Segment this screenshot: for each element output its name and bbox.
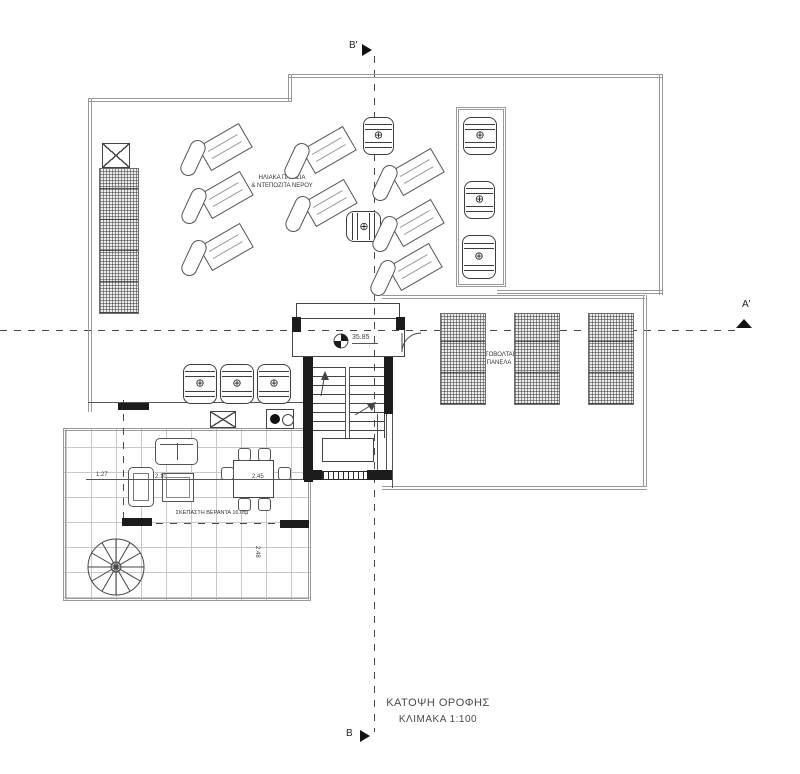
wall-segment <box>304 462 313 482</box>
roof-plan-drawing: Β' Β Α' ΗΛΙΑΚΑ ΠΛΑΙΣΙΑ & ΝΤΕΠΟΖΙΤΑ ΝΕΡΟΥ… <box>0 0 800 774</box>
water-tank: ⊕ <box>183 364 217 404</box>
stair-landing <box>322 438 374 462</box>
wall-segment <box>384 357 393 414</box>
water-tank: ⊕ <box>220 364 254 404</box>
tank-cap-icon: ⊕ <box>464 130 496 141</box>
roof-edge-line <box>382 486 647 490</box>
section-arrow-icon <box>360 730 370 742</box>
plan-line <box>123 400 124 523</box>
roof-edge-line <box>643 295 647 487</box>
water-tank: ⊕ <box>257 364 291 404</box>
tank-band <box>185 391 215 397</box>
dimension-label: 1.27 <box>96 472 108 478</box>
bbq-unit <box>266 409 294 429</box>
plan-symbols-overlay <box>0 0 800 774</box>
scale-line: ΚΛΙΜΑΚΑ 1:100 <box>360 712 516 727</box>
tank-cap-icon: ⊕ <box>463 251 495 262</box>
solar-heater-unit <box>184 227 250 279</box>
roof-edge-line <box>288 74 663 78</box>
burner-icon <box>282 414 294 426</box>
tank-band <box>464 243 494 249</box>
plan-line <box>86 479 308 480</box>
wall-segment <box>396 317 405 330</box>
wall-segment <box>122 518 152 526</box>
plan-line <box>392 412 393 488</box>
roof-edge-line <box>659 74 663 295</box>
dining-chair <box>238 448 251 461</box>
tank-band <box>465 142 495 148</box>
wall-segment <box>118 403 149 410</box>
solar-heater-unit <box>287 130 353 182</box>
tank-cap-icon: ⊕ <box>184 378 216 389</box>
water-tank: ⊕ <box>462 235 496 279</box>
veranda-label: ΣΚΕΠΑΣΤΗ ΒΕΡΑΝΤΑ 16.0τμ <box>174 510 250 517</box>
pv-panel <box>440 313 486 405</box>
water-tank: ⊕ <box>363 117 394 155</box>
tank-band <box>259 391 289 397</box>
stair-flight <box>312 367 346 438</box>
veranda-boundary <box>128 523 304 524</box>
section-arrow-icon <box>736 319 752 328</box>
solar-heater-unit <box>288 183 354 235</box>
dining-chair <box>258 448 271 461</box>
stair-flight <box>349 367 385 438</box>
plan-line <box>352 343 378 344</box>
tank-band <box>222 371 252 377</box>
tank-cap-icon: ⊕ <box>465 194 494 205</box>
tank-band <box>365 142 392 148</box>
burner-icon <box>270 414 280 424</box>
section-marker-a-right: Α' <box>742 299 751 310</box>
stair-parapet <box>296 303 400 319</box>
plan-line <box>349 367 350 438</box>
water-tank: ⊕ <box>463 117 497 155</box>
wall-segment <box>367 470 392 480</box>
vent-louver <box>322 471 368 480</box>
tank-cap-icon: ⊕ <box>221 378 253 389</box>
pv-panel <box>99 168 139 314</box>
water-tank: ⊕ <box>464 181 495 219</box>
drawing-title: ΚΑΤΟΨΗ ΟΡΟΦΗΣ ΚΛΙΜΑΚΑ 1:100 <box>360 695 516 727</box>
stair-vestibule <box>292 318 405 357</box>
tank-band <box>185 371 215 377</box>
wall-segment <box>280 520 309 528</box>
roof-edge-line <box>88 98 92 412</box>
solar-heater-unit <box>375 152 441 204</box>
level-value: 35.85 <box>352 334 370 341</box>
pv-panel <box>514 313 560 405</box>
tank-band <box>222 391 252 397</box>
plan-line <box>377 414 378 472</box>
pv-panel <box>588 313 634 405</box>
section-marker-b-top: Β' <box>349 40 358 51</box>
tank-cap-icon: ⊕ <box>358 212 369 241</box>
dining-chair <box>238 498 251 511</box>
section-marker-b-bottom: Β <box>346 728 353 739</box>
section-arrow-icon <box>362 44 372 56</box>
sofa <box>155 438 198 465</box>
dining-chair <box>258 498 271 511</box>
plan-line <box>345 367 346 438</box>
dining-chair <box>278 467 291 480</box>
solar-heater-unit <box>373 247 439 299</box>
skylight <box>210 411 236 428</box>
plan-line <box>386 412 387 474</box>
tank-cap-icon: ⊕ <box>258 378 290 389</box>
tank-band <box>466 206 493 212</box>
tank-band <box>259 371 289 377</box>
armchair <box>128 467 154 507</box>
tank-cap-icon: ⊕ <box>364 130 393 141</box>
roof-edge-line <box>88 98 291 102</box>
tank-band <box>464 265 494 271</box>
skylight <box>102 143 130 168</box>
wall-segment <box>292 317 301 332</box>
roof-edge-line <box>497 290 663 294</box>
dining-chair <box>221 467 234 480</box>
solar-heater-unit <box>184 175 250 227</box>
title-line: ΚΑΤΟΨΗ ΟΡΟΦΗΣ <box>360 695 516 712</box>
dimension-label: 2.48 <box>254 546 260 558</box>
